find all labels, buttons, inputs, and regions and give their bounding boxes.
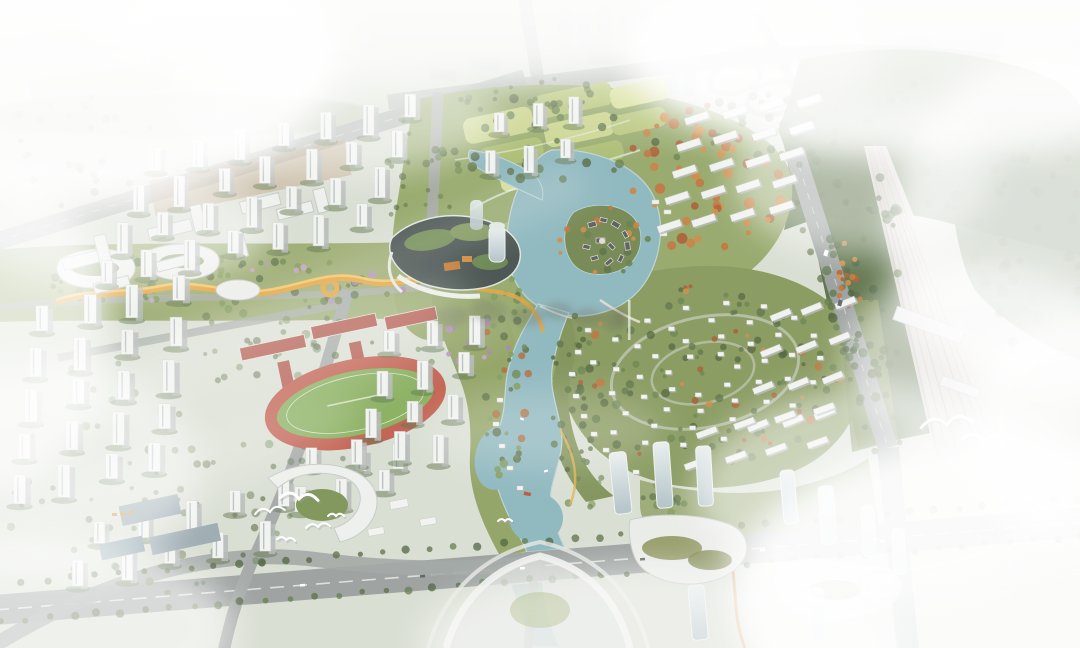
scene-svg: Aerial masterplan rendering of a riversi…: [0, 0, 1080, 648]
aerial-masterplan-rendering: Aerial masterplan rendering of a riversi…: [0, 0, 1080, 648]
global-haze-veil: [0, 0, 1080, 648]
